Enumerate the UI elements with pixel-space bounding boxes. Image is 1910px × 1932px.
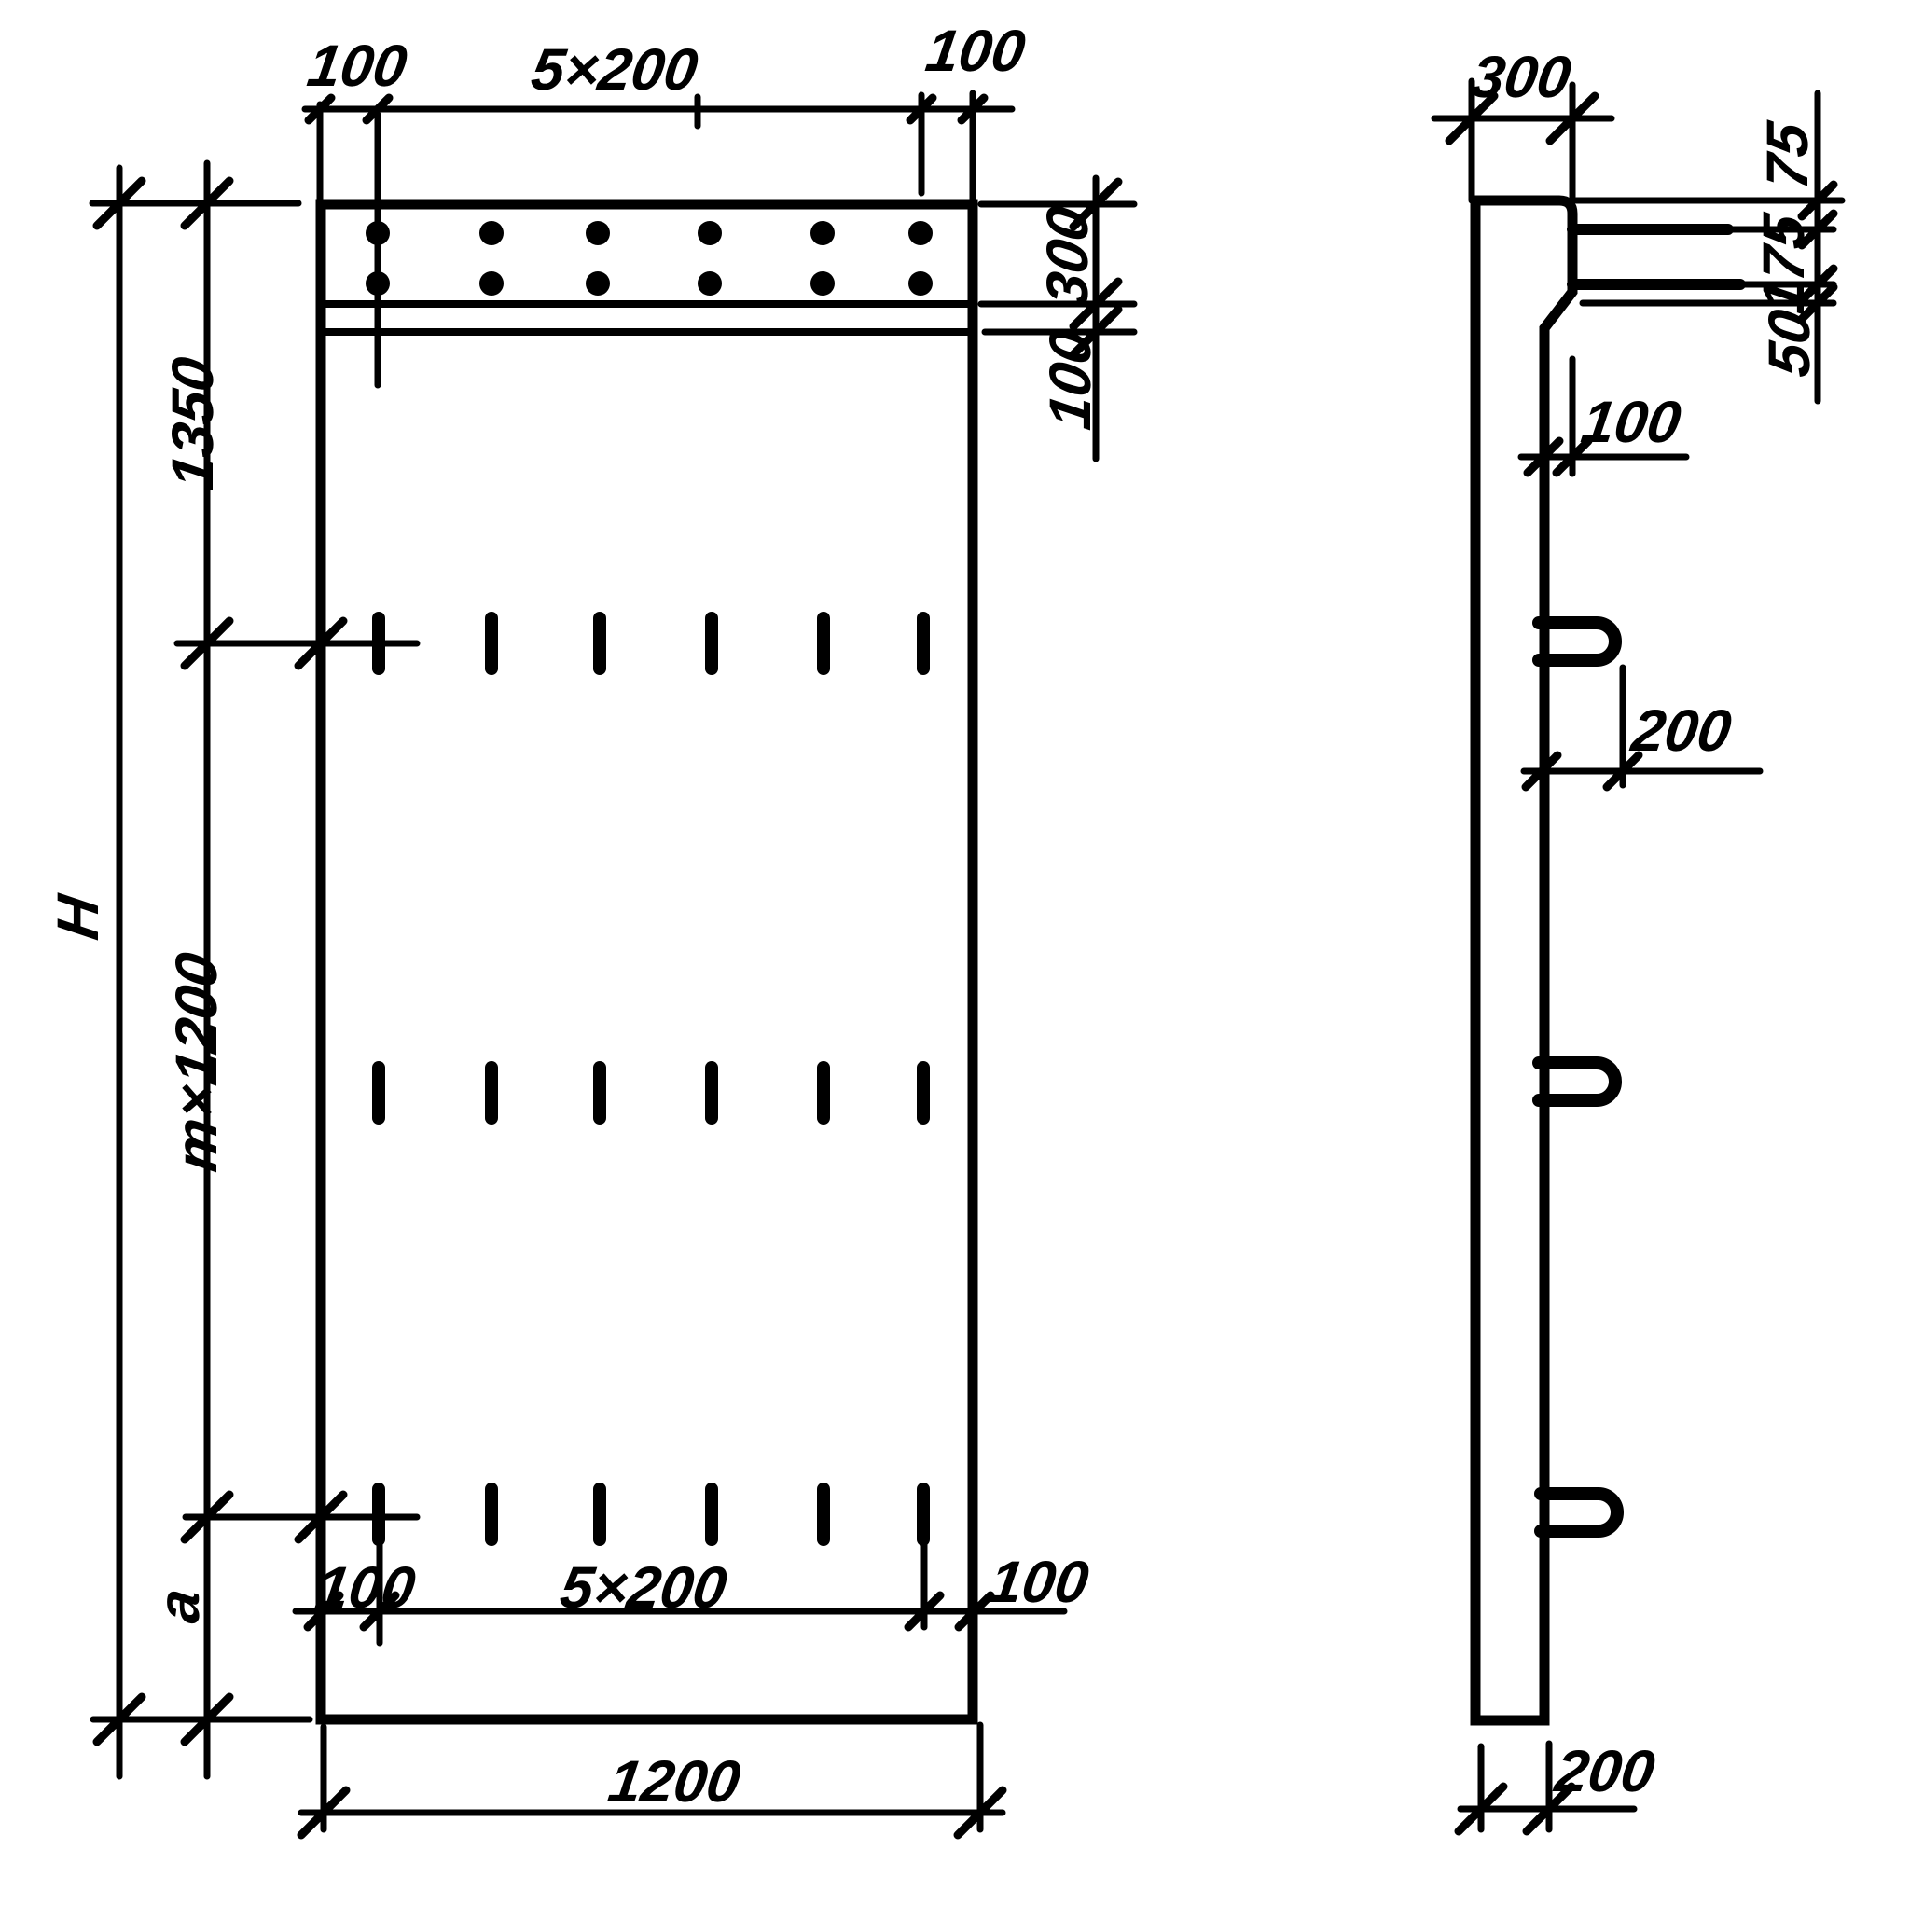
svg-text:1200: 1200 [604,1749,744,1815]
svg-text:100: 100 [985,1550,1092,1615]
svg-text:1350: 1350 [160,353,226,493]
svg-text:175: 175 [1751,210,1817,318]
svg-text:50: 50 [1757,306,1822,380]
svg-text:200: 200 [1551,1739,1659,1804]
svg-text:100: 100 [311,1555,419,1621]
svg-text:100: 100 [921,19,1029,84]
svg-text:5×200: 5×200 [528,37,702,103]
svg-text:100: 100 [1038,326,1103,434]
svg-text:300: 300 [1467,45,1574,110]
svg-text:300: 300 [1035,203,1100,310]
svg-text:100: 100 [1577,390,1684,455]
svg-text:100: 100 [303,34,410,99]
svg-text:H: H [46,890,111,944]
svg-text:a: a [146,1585,212,1627]
svg-text:75: 75 [1755,117,1820,193]
svg-text:200: 200 [1627,698,1736,764]
svg-text:5×200: 5×200 [557,1555,731,1621]
svg-text:m×1200: m×1200 [164,949,229,1176]
